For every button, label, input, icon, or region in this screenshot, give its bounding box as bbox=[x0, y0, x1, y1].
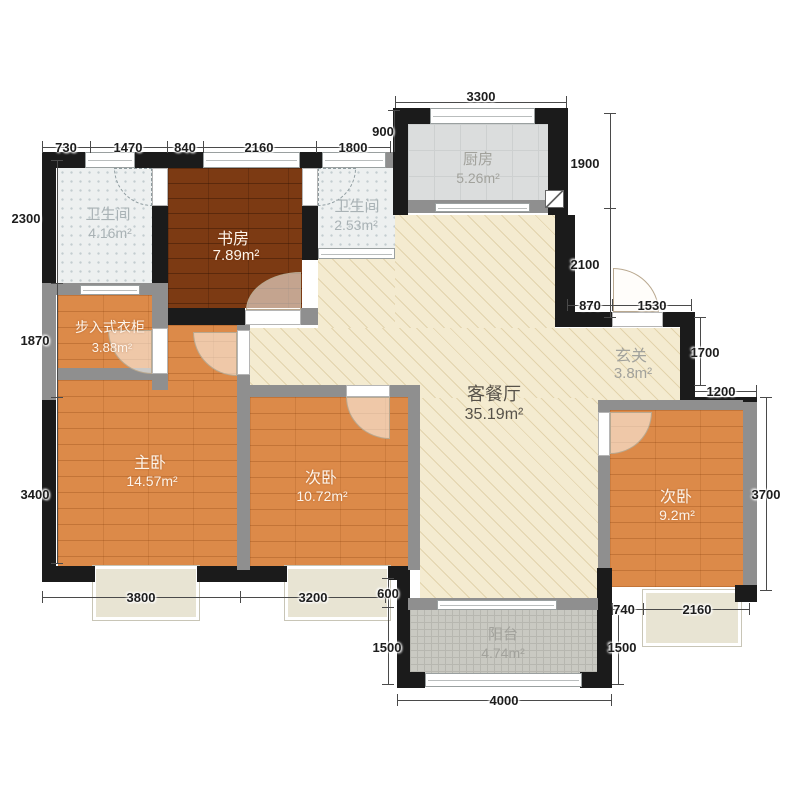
tick bbox=[382, 578, 394, 579]
room-area-closet: 3.88m² bbox=[92, 340, 132, 355]
tick bbox=[388, 110, 400, 111]
wall-balcony-bottom-left bbox=[397, 672, 425, 688]
window-kitchen-top bbox=[430, 108, 535, 124]
room-label-bathroom-2: 卫生间 bbox=[334, 195, 379, 216]
wall-left-top bbox=[42, 152, 56, 288]
dim-label-2160: 2160 bbox=[245, 140, 274, 155]
bay-window-bedroom-3 bbox=[643, 590, 741, 646]
tick bbox=[90, 141, 91, 153]
floor-living-center bbox=[420, 398, 598, 600]
room-label-study: 书房 bbox=[217, 225, 249, 249]
room-label-bedroom-3: 次卧 bbox=[660, 483, 692, 507]
door-jamb-master bbox=[237, 330, 250, 375]
window-bathroom1-bottom bbox=[80, 285, 140, 295]
room-label-master: 主卧 bbox=[134, 449, 166, 473]
wall-entry-top-a bbox=[555, 312, 612, 327]
tick bbox=[316, 141, 317, 153]
tick bbox=[167, 141, 168, 153]
floor-living-under-bath2 bbox=[318, 258, 395, 330]
window-balcony-bottom bbox=[425, 673, 582, 687]
room-label-balcony: 阳台 bbox=[488, 623, 518, 644]
dim-label-3300: 3300 bbox=[467, 89, 496, 104]
tick bbox=[611, 694, 612, 706]
tick bbox=[240, 591, 241, 603]
dim-label-870: 870 bbox=[579, 298, 601, 313]
room-label-closet: 步入式衣柜 bbox=[75, 317, 145, 337]
floor-plan: 卫生间 4.16m² 书房 7.89m² 卫生间 2.53m² 厨房 5.26m… bbox=[0, 0, 800, 800]
kitchen-door-icon bbox=[545, 190, 564, 208]
dim-line-left bbox=[57, 160, 58, 563]
dim-line-right-kitchen bbox=[610, 113, 611, 317]
room-label-bathroom-1: 卫生间 bbox=[85, 203, 130, 224]
tick bbox=[51, 563, 63, 564]
dim-line-bottom-row bbox=[42, 597, 385, 598]
room-area-bathroom-1: 4.16m² bbox=[88, 225, 132, 241]
room-area-entry: 3.8m² bbox=[614, 365, 652, 382]
room-area-kitchen: 5.26m² bbox=[456, 170, 500, 186]
tick bbox=[382, 684, 394, 685]
dim-label-2100: 2100 bbox=[571, 257, 600, 272]
tick bbox=[604, 208, 616, 209]
door-jamb-closet bbox=[152, 328, 168, 374]
tick bbox=[760, 397, 772, 398]
tick bbox=[566, 96, 567, 108]
wall-bed2-right bbox=[408, 385, 420, 570]
tick bbox=[51, 283, 63, 284]
dim-label-730: 730 bbox=[55, 140, 77, 155]
dim-label-1870: 1870 bbox=[21, 333, 50, 348]
dim-label-3700: 3700 bbox=[752, 487, 781, 502]
wall-balcony-right bbox=[597, 568, 612, 688]
room-label-living: 客餐厅 bbox=[467, 380, 521, 406]
floor-living-under-kitchen bbox=[395, 215, 555, 330]
room-area-bathroom-2: 2.53m² bbox=[334, 217, 378, 233]
room-label-entry: 玄关 bbox=[615, 342, 647, 366]
dim-label-840: 840 bbox=[174, 140, 196, 155]
wall-left-bottom bbox=[42, 400, 56, 570]
dim-label-900: 900 bbox=[372, 124, 394, 139]
tick bbox=[604, 317, 616, 318]
tick bbox=[694, 317, 706, 318]
dim-label-740: 740 bbox=[613, 602, 635, 617]
room-label-kitchen: 厨房 bbox=[463, 148, 493, 169]
tick bbox=[390, 141, 391, 153]
dim-label-1470: 1470 bbox=[114, 140, 143, 155]
room-area-balcony: 4.74m² bbox=[481, 645, 525, 661]
dim-label-3400: 3400 bbox=[21, 487, 50, 502]
tick bbox=[691, 299, 692, 311]
tick bbox=[694, 385, 706, 386]
dim-label-3200: 3200 bbox=[299, 590, 328, 605]
tick bbox=[756, 385, 757, 397]
tick bbox=[567, 299, 568, 311]
room-area-bedroom-2: 10.72m² bbox=[296, 488, 347, 504]
room-area-living: 35.19m² bbox=[465, 406, 524, 424]
room-area-master: 14.57m² bbox=[126, 473, 177, 489]
tick bbox=[395, 96, 396, 108]
dim-label-2160-bed3: 2160 bbox=[683, 602, 712, 617]
dim-label-1500-right: 1500 bbox=[608, 640, 637, 655]
dim-label-1800: 1800 bbox=[339, 140, 368, 155]
tick bbox=[397, 694, 398, 706]
tick bbox=[749, 603, 750, 615]
dim-label-1900: 1900 bbox=[571, 156, 600, 171]
tick bbox=[42, 141, 43, 153]
wall-bedroom3-corner bbox=[735, 585, 757, 602]
dim-label-1200: 1200 bbox=[707, 384, 736, 399]
tick bbox=[643, 603, 644, 615]
sliding-door-balcony bbox=[437, 600, 557, 610]
wall-bed3-top bbox=[598, 400, 743, 410]
dim-label-2300: 2300 bbox=[12, 211, 41, 226]
door-jamb-bedroom3 bbox=[598, 412, 610, 456]
door-jamb-bathroom1 bbox=[152, 168, 168, 206]
door-jamb-bathroom2 bbox=[302, 168, 318, 206]
window-bathroom2-bottom bbox=[318, 248, 395, 259]
tick bbox=[42, 591, 43, 603]
tick bbox=[51, 397, 63, 398]
door-jamb-study bbox=[245, 310, 301, 325]
wall-kitchen-left bbox=[393, 108, 408, 215]
tick bbox=[51, 160, 63, 161]
wall-bottom-a bbox=[42, 566, 95, 582]
dim-label-1500-left: 1500 bbox=[373, 640, 402, 655]
door-jamb-bedroom2 bbox=[346, 385, 390, 397]
door-opening-entry bbox=[612, 312, 663, 327]
room-label-bedroom-2: 次卧 bbox=[305, 464, 337, 488]
wall-study-bottom bbox=[160, 308, 245, 325]
tick bbox=[760, 590, 772, 591]
sliding-door-kitchen bbox=[435, 203, 530, 212]
dim-label-1700: 1700 bbox=[691, 345, 720, 360]
tick bbox=[203, 141, 204, 153]
dim-label-1530: 1530 bbox=[638, 298, 667, 313]
tick bbox=[612, 684, 624, 685]
tick bbox=[612, 299, 613, 311]
dim-label-4000: 4000 bbox=[490, 693, 519, 708]
room-area-study: 7.89m² bbox=[213, 247, 260, 264]
wall-kitchen-top-a bbox=[408, 108, 430, 124]
wall-study-bottom-gray bbox=[301, 308, 318, 325]
tick bbox=[604, 113, 616, 114]
room-area-bedroom-3: 9.2m² bbox=[659, 507, 695, 523]
dim-label-600: 600 bbox=[377, 586, 399, 601]
dim-label-3800: 3800 bbox=[127, 590, 156, 605]
